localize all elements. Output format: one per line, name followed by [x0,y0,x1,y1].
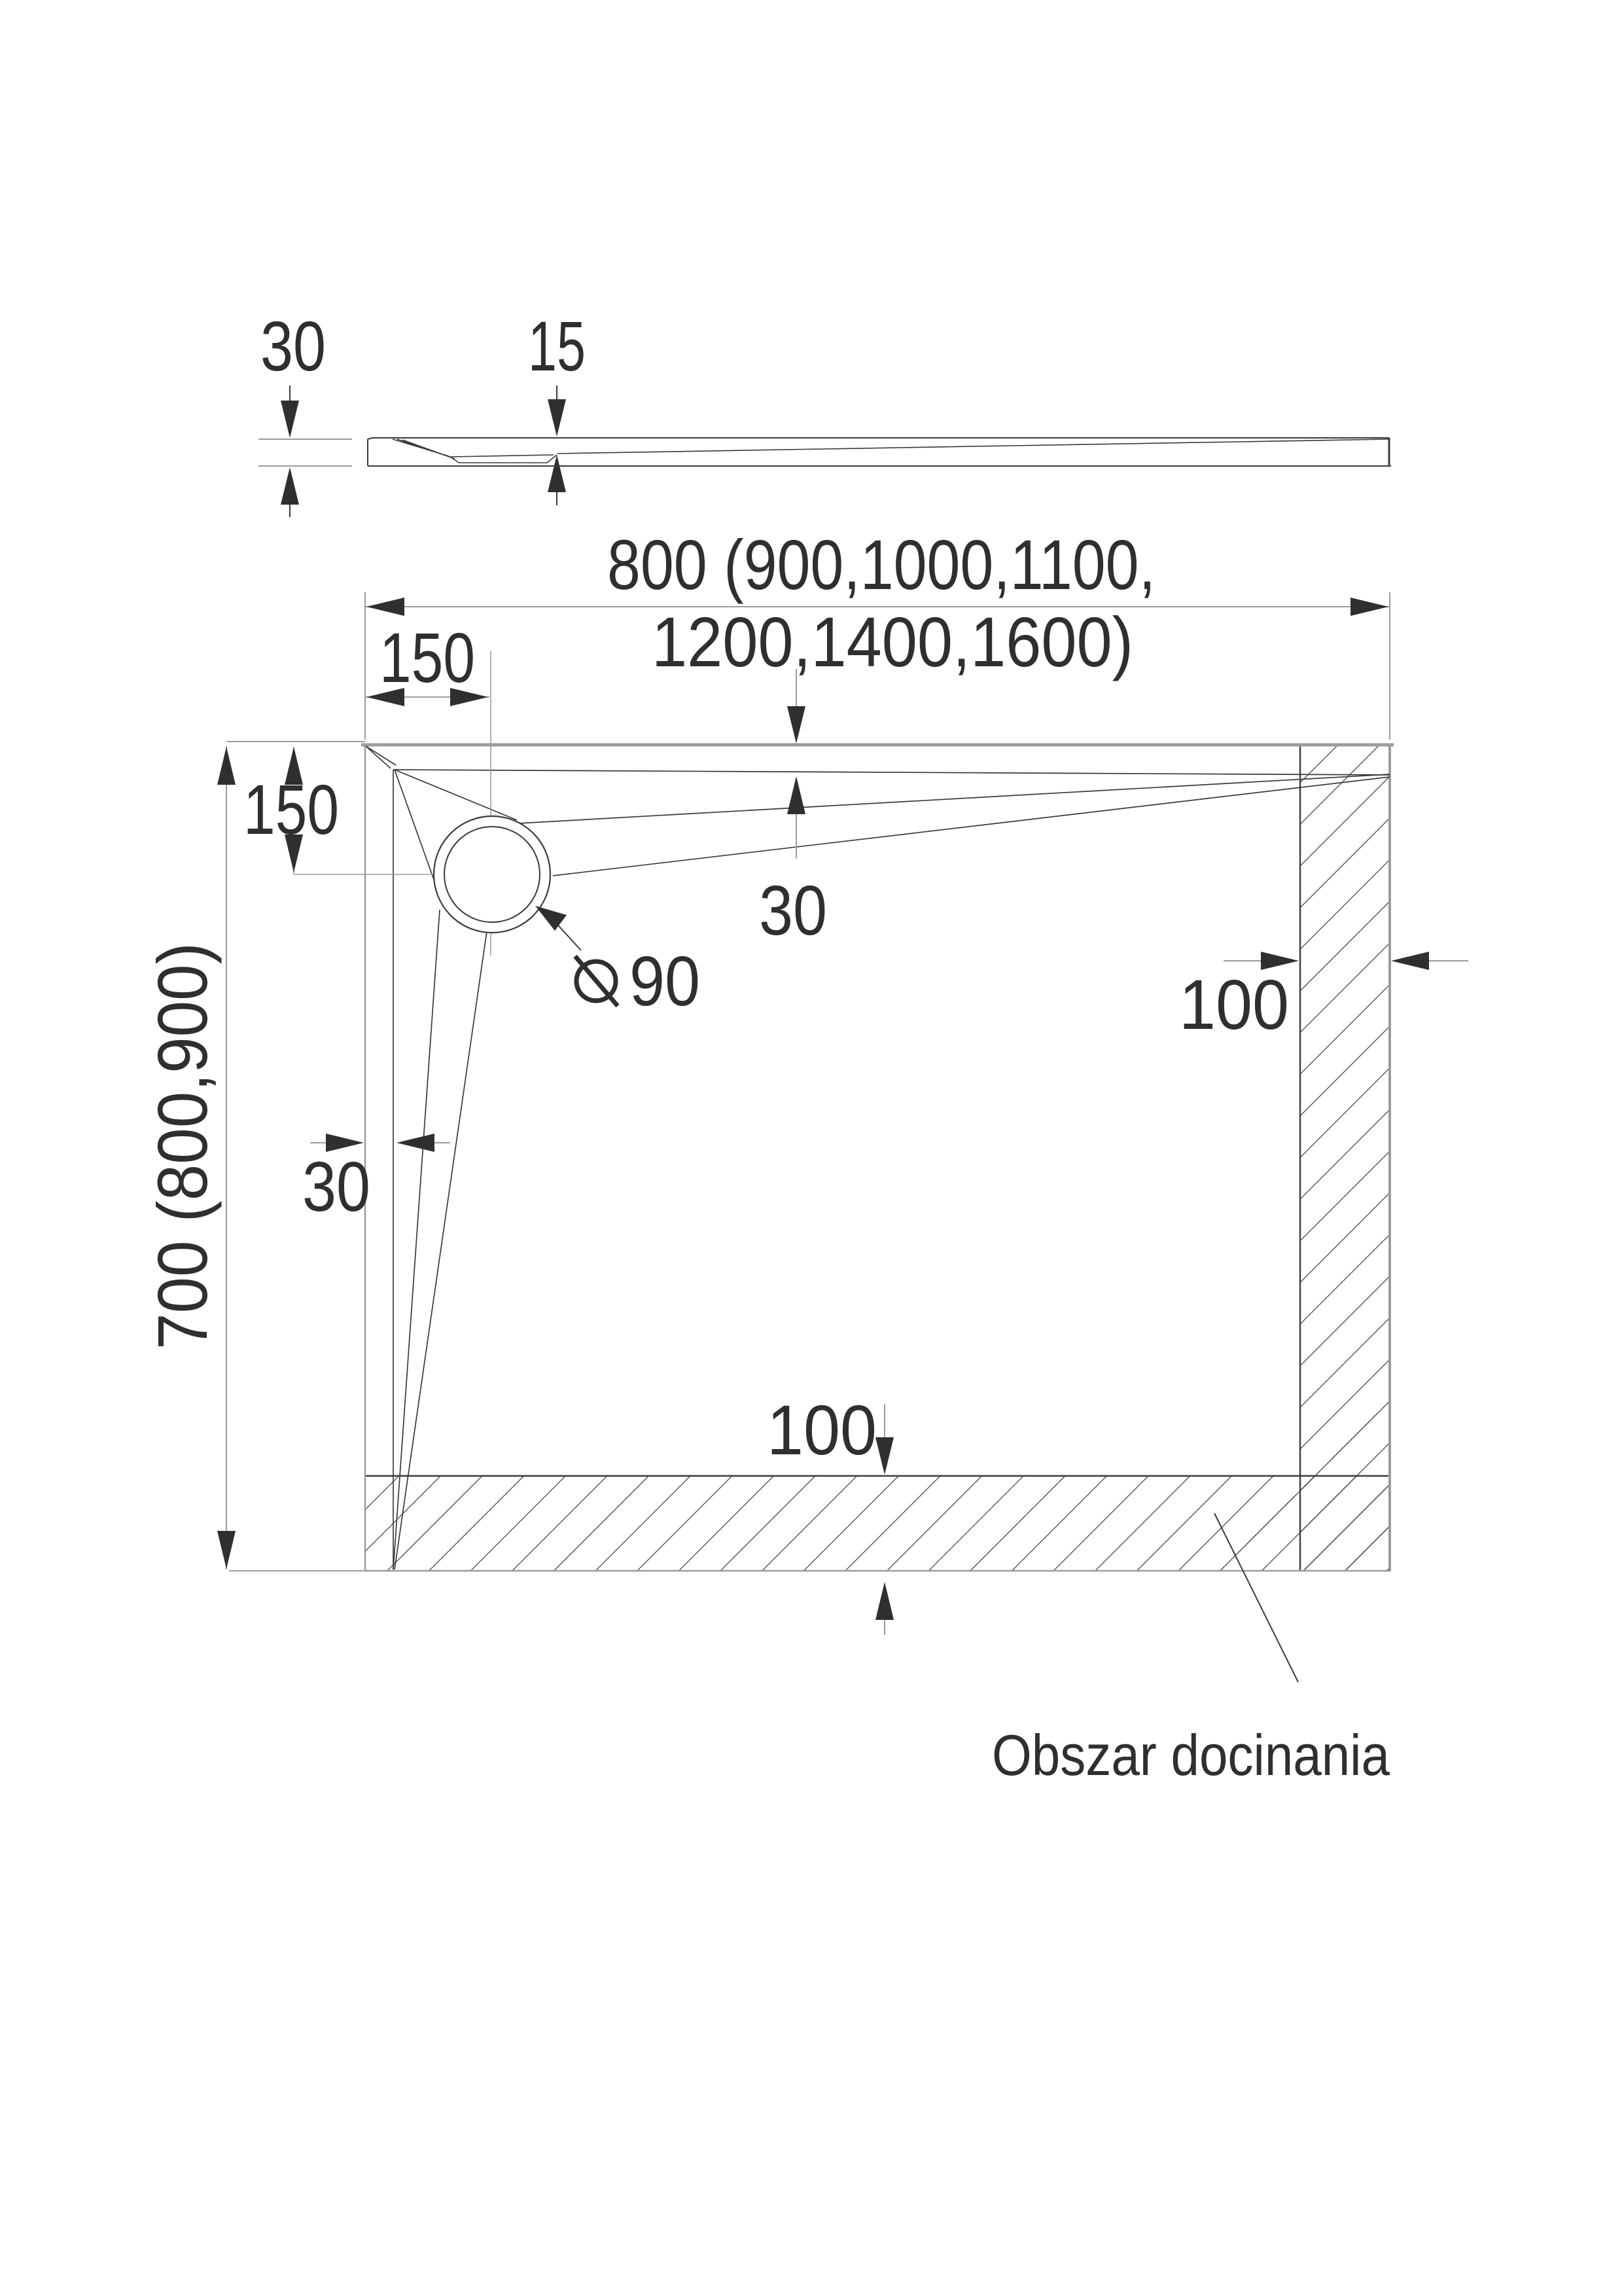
profile-depth-dimension: 15 [528,306,586,505]
drain-offset-y-dimension: 150 [243,747,339,873]
arrowhead-up-icon [875,1582,894,1620]
arrowhead-right-icon [1350,598,1388,616]
profile-tray-outline [368,438,1391,466]
profile-thickness-dimension: 30 [260,306,326,517]
diameter-icon [575,956,618,1006]
trim-band-right [1300,745,1390,1571]
trim-area-label: Obszar docinania [992,1723,1390,1787]
slope-offset-left-dimension: 30 [302,1134,450,1226]
leader-arrowhead-icon [535,906,567,931]
trim-bottom-label: 100 [767,1390,877,1469]
drain-diameter-label: 90 [629,941,700,1020]
arrowhead-left-icon [1391,952,1429,970]
slope-offset-top-label: 30 [759,870,827,950]
width-dimension: 800 (900,1000,1100, 1200,1400,1600) [365,525,1390,740]
arrowhead-down-icon [787,706,805,744]
drain-offset-x-label: 150 [380,618,475,697]
drain-offset-x-dimension: 150 [365,618,489,706]
plan-view: 800 (900,1000,1100, 1200,1400,1600) 700 … [143,525,1468,1787]
height-label: 700 (800,900) [143,942,222,1350]
width-label-line1: 800 (900,1000,1100, [607,525,1156,604]
arrowhead-up-icon [217,747,236,785]
arrowhead-left-icon [366,598,404,616]
arrowhead-down-icon [875,1437,894,1475]
arrowhead-up-icon [281,467,299,505]
slope-offset-left-label: 30 [302,1147,370,1226]
drain-diameter-callout: 90 [535,906,700,1020]
arrowhead-down-icon [217,1531,236,1569]
arrowhead-down-icon [281,401,299,438]
drain-circle-outer [434,816,550,933]
arrowhead-up-icon [787,776,805,814]
profile-depth-label: 15 [528,306,586,386]
arrowhead-down-icon [548,399,566,437]
drain-offset-y-label: 150 [243,770,339,849]
technical-drawing-page: 30 15 [0,0,1624,2296]
profile-view: 30 15 [258,306,1391,517]
profile-thickness-label: 30 [260,306,326,386]
arrowhead-left-icon [397,1134,434,1152]
trim-right-label: 100 [1179,965,1289,1044]
drawing-canvas: 30 15 [0,0,1624,2296]
width-label-line2: 1200,1400,1600) [652,602,1133,681]
